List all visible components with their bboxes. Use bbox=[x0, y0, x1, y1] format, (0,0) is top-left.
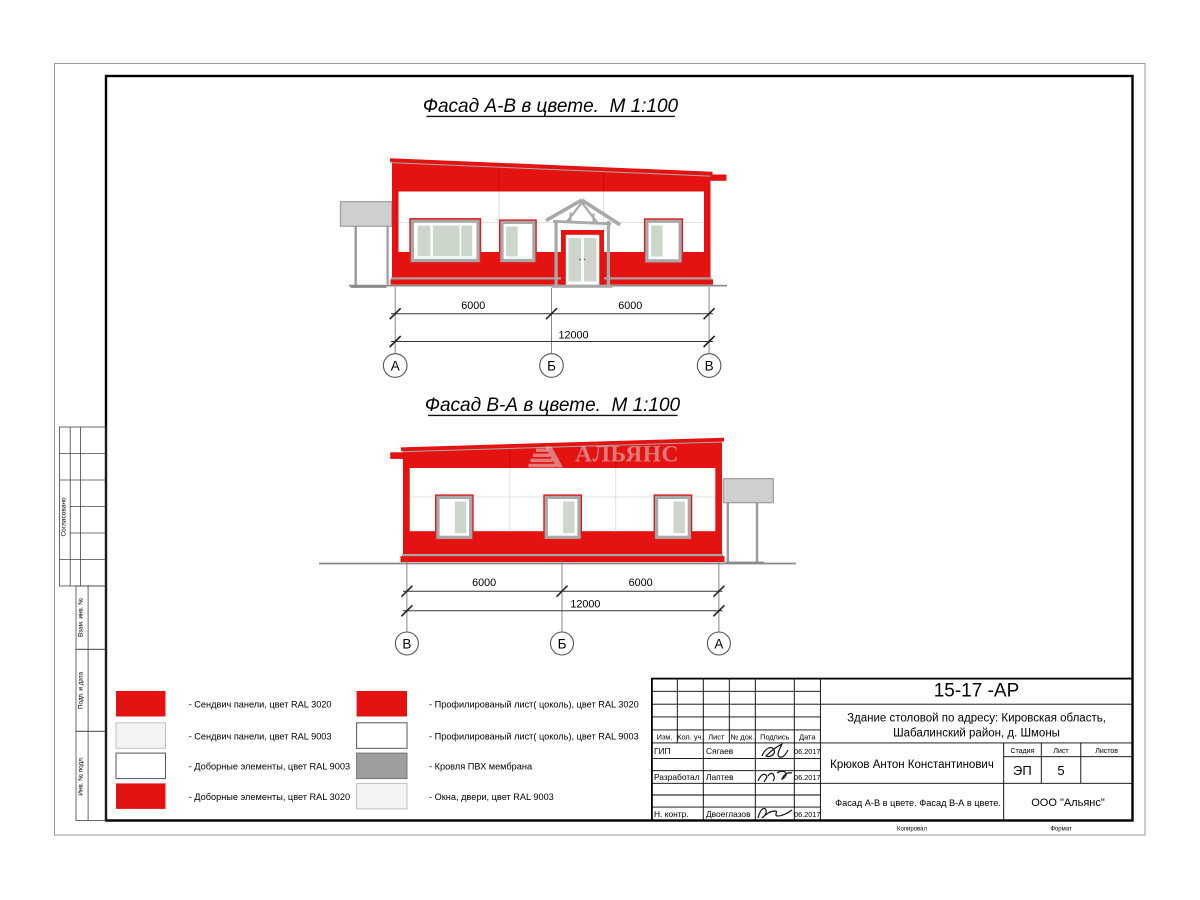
svg-text:Инв. № подл.: Инв. № подл. bbox=[78, 756, 85, 795]
svg-text:Б: Б bbox=[558, 636, 567, 651]
svg-text:12000: 12000 bbox=[558, 329, 588, 341]
svg-text:Фасад А-В в цвете. М 1:100: Фасад А-В в цвете. М 1:100 bbox=[423, 96, 679, 117]
svg-text:Лист: Лист bbox=[708, 733, 725, 742]
svg-text:5: 5 bbox=[1057, 763, 1064, 778]
svg-text:Разработал: Разработал bbox=[654, 772, 700, 782]
svg-text:Копировал: Копировал bbox=[897, 827, 928, 833]
svg-text:№ док.: № док. bbox=[730, 733, 754, 742]
svg-text:Двоеглазов: Двоеглазов bbox=[706, 809, 751, 819]
svg-text:Б: Б bbox=[547, 358, 556, 373]
svg-text:Лист: Лист bbox=[1053, 748, 1069, 755]
svg-text:В: В bbox=[402, 636, 411, 651]
svg-text:Н. контр.: Н. контр. bbox=[654, 809, 689, 819]
svg-text:Крюков Антон Константинович: Крюков Антон Константинович bbox=[830, 759, 994, 771]
svg-text:12000: 12000 bbox=[570, 598, 600, 610]
svg-text:- Профилированый лист( цоколь): - Профилированый лист( цоколь), цвет RAL… bbox=[429, 731, 639, 741]
svg-text:ООО "Альянс": ООО "Альянс" bbox=[1031, 797, 1105, 809]
svg-text:6000: 6000 bbox=[461, 300, 485, 312]
svg-text:- Профилированый лист( цоколь): - Профилированый лист( цоколь), цвет RAL… bbox=[429, 700, 639, 710]
svg-text:Кол. уч.: Кол. уч. bbox=[677, 733, 703, 742]
svg-text:Формат: Формат bbox=[1050, 827, 1072, 833]
svg-text:А: А bbox=[714, 636, 723, 651]
svg-text:В: В bbox=[705, 358, 714, 373]
svg-text:- Сендвич панели, цвет RAL 302: - Сендвич панели, цвет RAL 3020 bbox=[189, 700, 332, 710]
svg-text:15-17 -АР: 15-17 -АР bbox=[934, 681, 1020, 702]
svg-text:ГИП: ГИП bbox=[654, 746, 671, 756]
svg-text:- Доборные элементы, цвет RAL: - Доборные элементы, цвет RAL 9003 bbox=[189, 762, 350, 772]
svg-text:Лаптев: Лаптев bbox=[706, 772, 734, 782]
svg-text:Фасад А-В в цвете. Фасад В-А в: Фасад А-В в цвете. Фасад В-А в цвете. bbox=[835, 798, 1001, 808]
svg-text:6000: 6000 bbox=[472, 577, 496, 589]
svg-text:Здание столовой по адресу: Кир: Здание столовой по адресу: Кировская обл… bbox=[847, 713, 1106, 725]
svg-text:06.2017: 06.2017 bbox=[794, 773, 820, 782]
svg-text:Стадия: Стадия bbox=[1010, 748, 1034, 755]
svg-text:6000: 6000 bbox=[618, 300, 642, 312]
svg-text:Подпись: Подпись bbox=[760, 733, 789, 742]
svg-text:06.2017: 06.2017 bbox=[794, 810, 820, 819]
svg-text:- Сендвич панели, цвет RAL 900: - Сендвич панели, цвет RAL 9003 bbox=[189, 731, 332, 741]
svg-text:Сягаев: Сягаев bbox=[706, 746, 734, 756]
svg-text:А: А bbox=[391, 358, 400, 373]
svg-text:- Окна, двери, цвет RAL 9003: - Окна, двери, цвет RAL 9003 bbox=[429, 792, 554, 802]
svg-text:06.2017: 06.2017 bbox=[794, 747, 820, 756]
svg-text:Подп. и дата: Подп. и дата bbox=[78, 671, 85, 709]
svg-text:Изм.: Изм. bbox=[657, 733, 673, 742]
svg-text:Дата: Дата bbox=[799, 733, 816, 742]
svg-text:Листов: Листов bbox=[1095, 748, 1118, 755]
svg-text:- Кровля ПВХ мембрана: - Кровля ПВХ мембрана bbox=[429, 762, 533, 772]
svg-text:Шабалинский район, д. Шмоны: Шабалинский район, д. Шмоны bbox=[893, 728, 1060, 740]
svg-text:АЛЬЯНС: АЛЬЯНС bbox=[575, 442, 679, 468]
svg-text:6000: 6000 bbox=[629, 577, 653, 589]
svg-text:- Доборные элементы, цвет RAL: - Доборные элементы, цвет RAL 3020 bbox=[189, 792, 350, 802]
svg-text:Согласовано: Согласовано bbox=[61, 497, 68, 536]
svg-text:Фасад В-А в цвете. М 1:100: Фасад В-А в цвете. М 1:100 bbox=[425, 395, 681, 416]
svg-text:ЭП: ЭП bbox=[1013, 763, 1032, 778]
svg-text:Взам. инв. №: Взам. инв. № bbox=[78, 598, 85, 637]
